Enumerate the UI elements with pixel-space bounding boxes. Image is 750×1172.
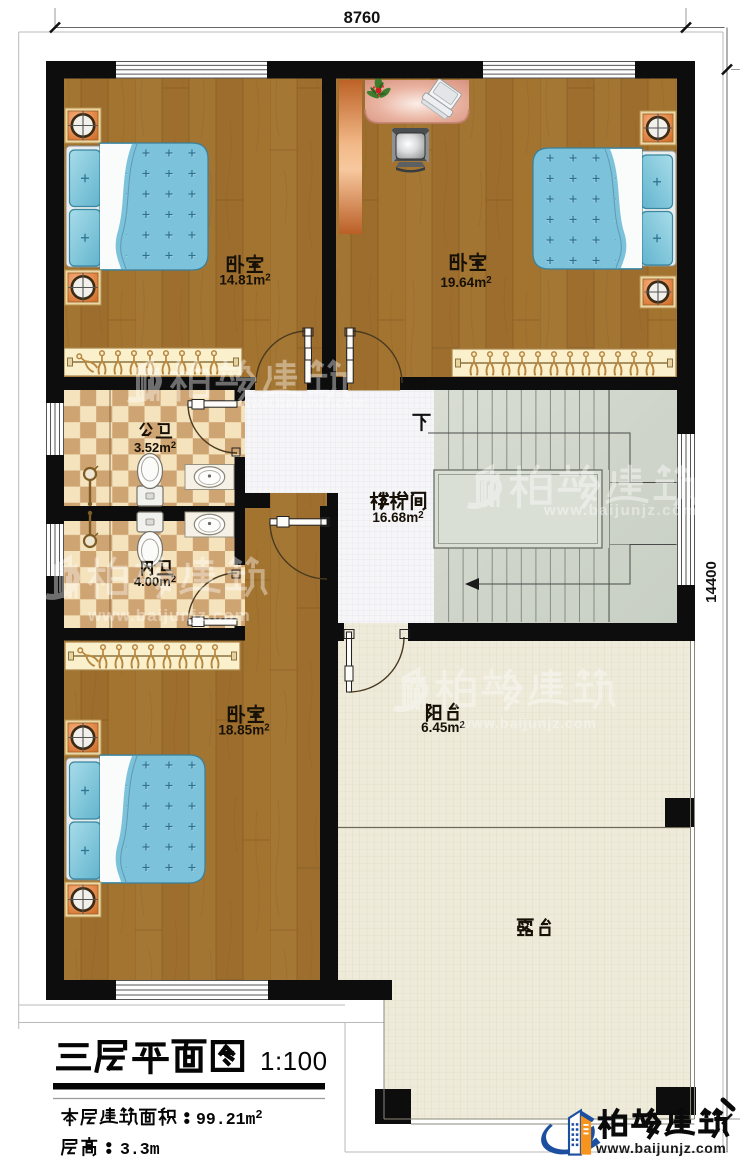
svg-text:1:100: 1:100 — [260, 1046, 328, 1076]
svg-text:www.baijunjz.com: www.baijunjz.com — [239, 395, 365, 410]
svg-text:18.85m2: 18.85m2 — [218, 723, 269, 738]
svg-text:www.baijunjz.com: www.baijunjz.com — [543, 502, 697, 519]
svg-text:www.baijunjz.com: www.baijunjz.com — [459, 715, 597, 731]
svg-text:16.68m2: 16.68m2 — [372, 510, 423, 525]
svg-text:3.52m2: 3.52m2 — [134, 439, 176, 455]
svg-text:6.45m2: 6.45m2 — [421, 720, 465, 735]
svg-text:99.21m2: 99.21m2 — [196, 1108, 263, 1129]
svg-text:www.baijunjz.com: www.baijunjz.com — [595, 1140, 726, 1156]
svg-text:8760: 8760 — [344, 9, 381, 27]
svg-text:14400: 14400 — [703, 561, 720, 603]
svg-text:19.64m2: 19.64m2 — [440, 275, 491, 290]
svg-text:www.baijunjz.com: www.baijunjz.com — [87, 606, 251, 625]
svg-text:14.81m2: 14.81m2 — [219, 273, 270, 288]
svg-text:z.com: z.com — [0, 950, 50, 970]
svg-text:3.3m: 3.3m — [120, 1140, 160, 1159]
